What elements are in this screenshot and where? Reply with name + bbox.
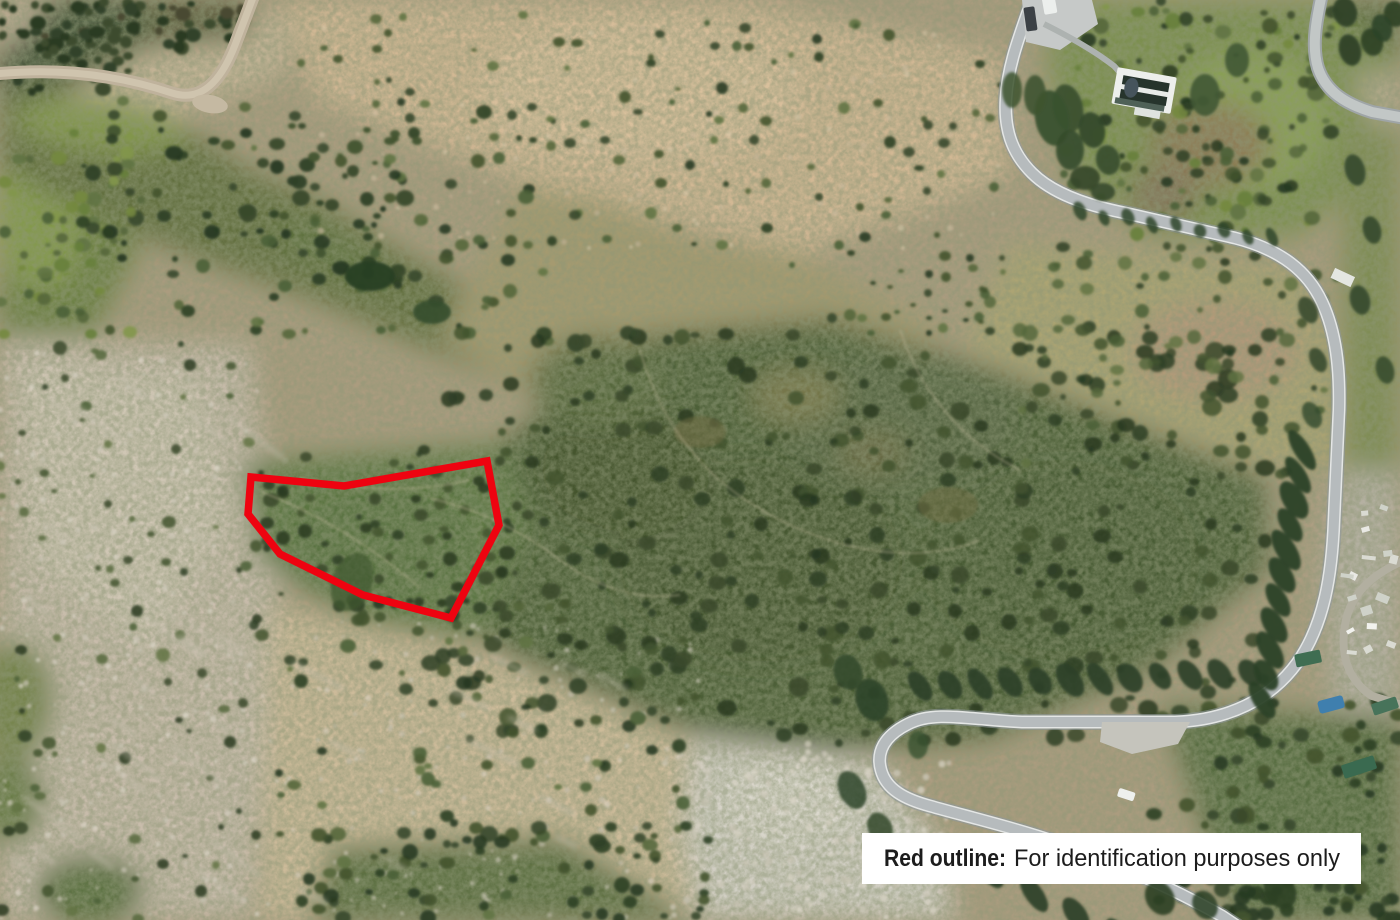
svg-text:For identification purposes on: For identification purposes only (1014, 845, 1340, 872)
svg-text:Red outline:: Red outline: (884, 845, 1006, 872)
